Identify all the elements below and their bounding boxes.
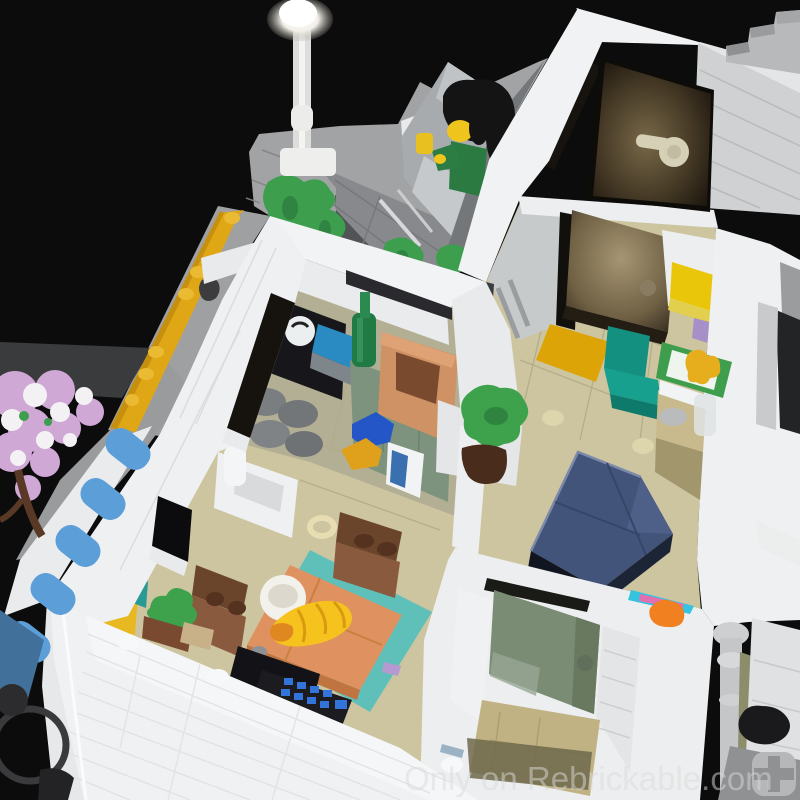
svg-text:Only on Rebrickable.com: Only on Rebrickable.com xyxy=(404,760,773,797)
